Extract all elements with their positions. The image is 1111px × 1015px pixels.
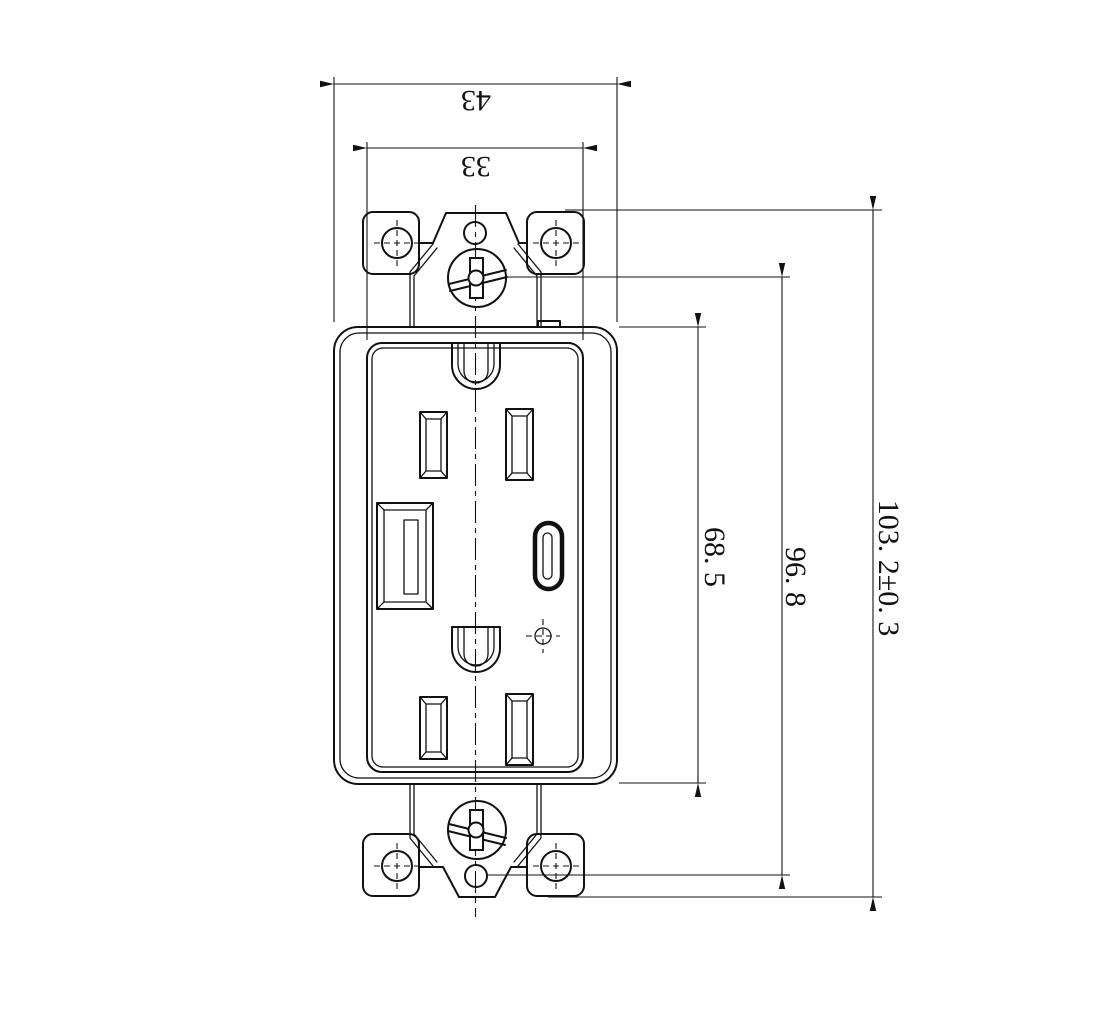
dim-text-face-width: 33 bbox=[461, 150, 491, 183]
bottom-strap-side-left bbox=[410, 784, 437, 866]
top-mounting-screw bbox=[448, 249, 507, 307]
bottom-left-ear bbox=[363, 834, 419, 896]
dim-text-cover-height: 68. 5 bbox=[698, 527, 731, 587]
upper-outlet bbox=[420, 344, 533, 480]
receptacle-dimension-drawing: 43 33 68. 5 96. 8 103. 2±0. 3 bbox=[0, 0, 1111, 1015]
dim-text-overall-width: 43 bbox=[461, 84, 491, 117]
top-strap-side-right bbox=[514, 244, 541, 327]
top-left-ear bbox=[363, 212, 419, 274]
bottom-strap-side-right bbox=[514, 784, 541, 866]
bottom-strap-bump bbox=[419, 867, 527, 897]
dim-text-screw-span: 96. 8 bbox=[779, 547, 812, 607]
lower-hot-slot bbox=[506, 694, 533, 765]
usb-c-tongue bbox=[543, 533, 552, 579]
bottom-mounting-screw bbox=[448, 801, 506, 859]
usb-a-tongue bbox=[404, 520, 418, 594]
lower-outlet bbox=[420, 627, 533, 765]
usb-a-port bbox=[377, 503, 433, 609]
upper-hot-slot bbox=[506, 409, 533, 480]
upper-neutral-slot bbox=[420, 412, 447, 478]
mounting-strap-top bbox=[363, 212, 584, 327]
technical-drawing-canvas: 43 33 68. 5 96. 8 103. 2±0. 3 bbox=[0, 0, 1111, 1015]
dim-cover-height: 68. 5 bbox=[619, 327, 731, 783]
top-strap-side-left bbox=[410, 244, 437, 327]
dim-text-overall-height: 103. 2±0. 3 bbox=[872, 500, 905, 636]
mounting-strap-bottom bbox=[363, 784, 584, 897]
lower-neutral-slot bbox=[420, 697, 447, 759]
top-strap-bump bbox=[419, 213, 527, 243]
indicator-led bbox=[526, 619, 560, 653]
usb-c-port bbox=[535, 523, 562, 589]
